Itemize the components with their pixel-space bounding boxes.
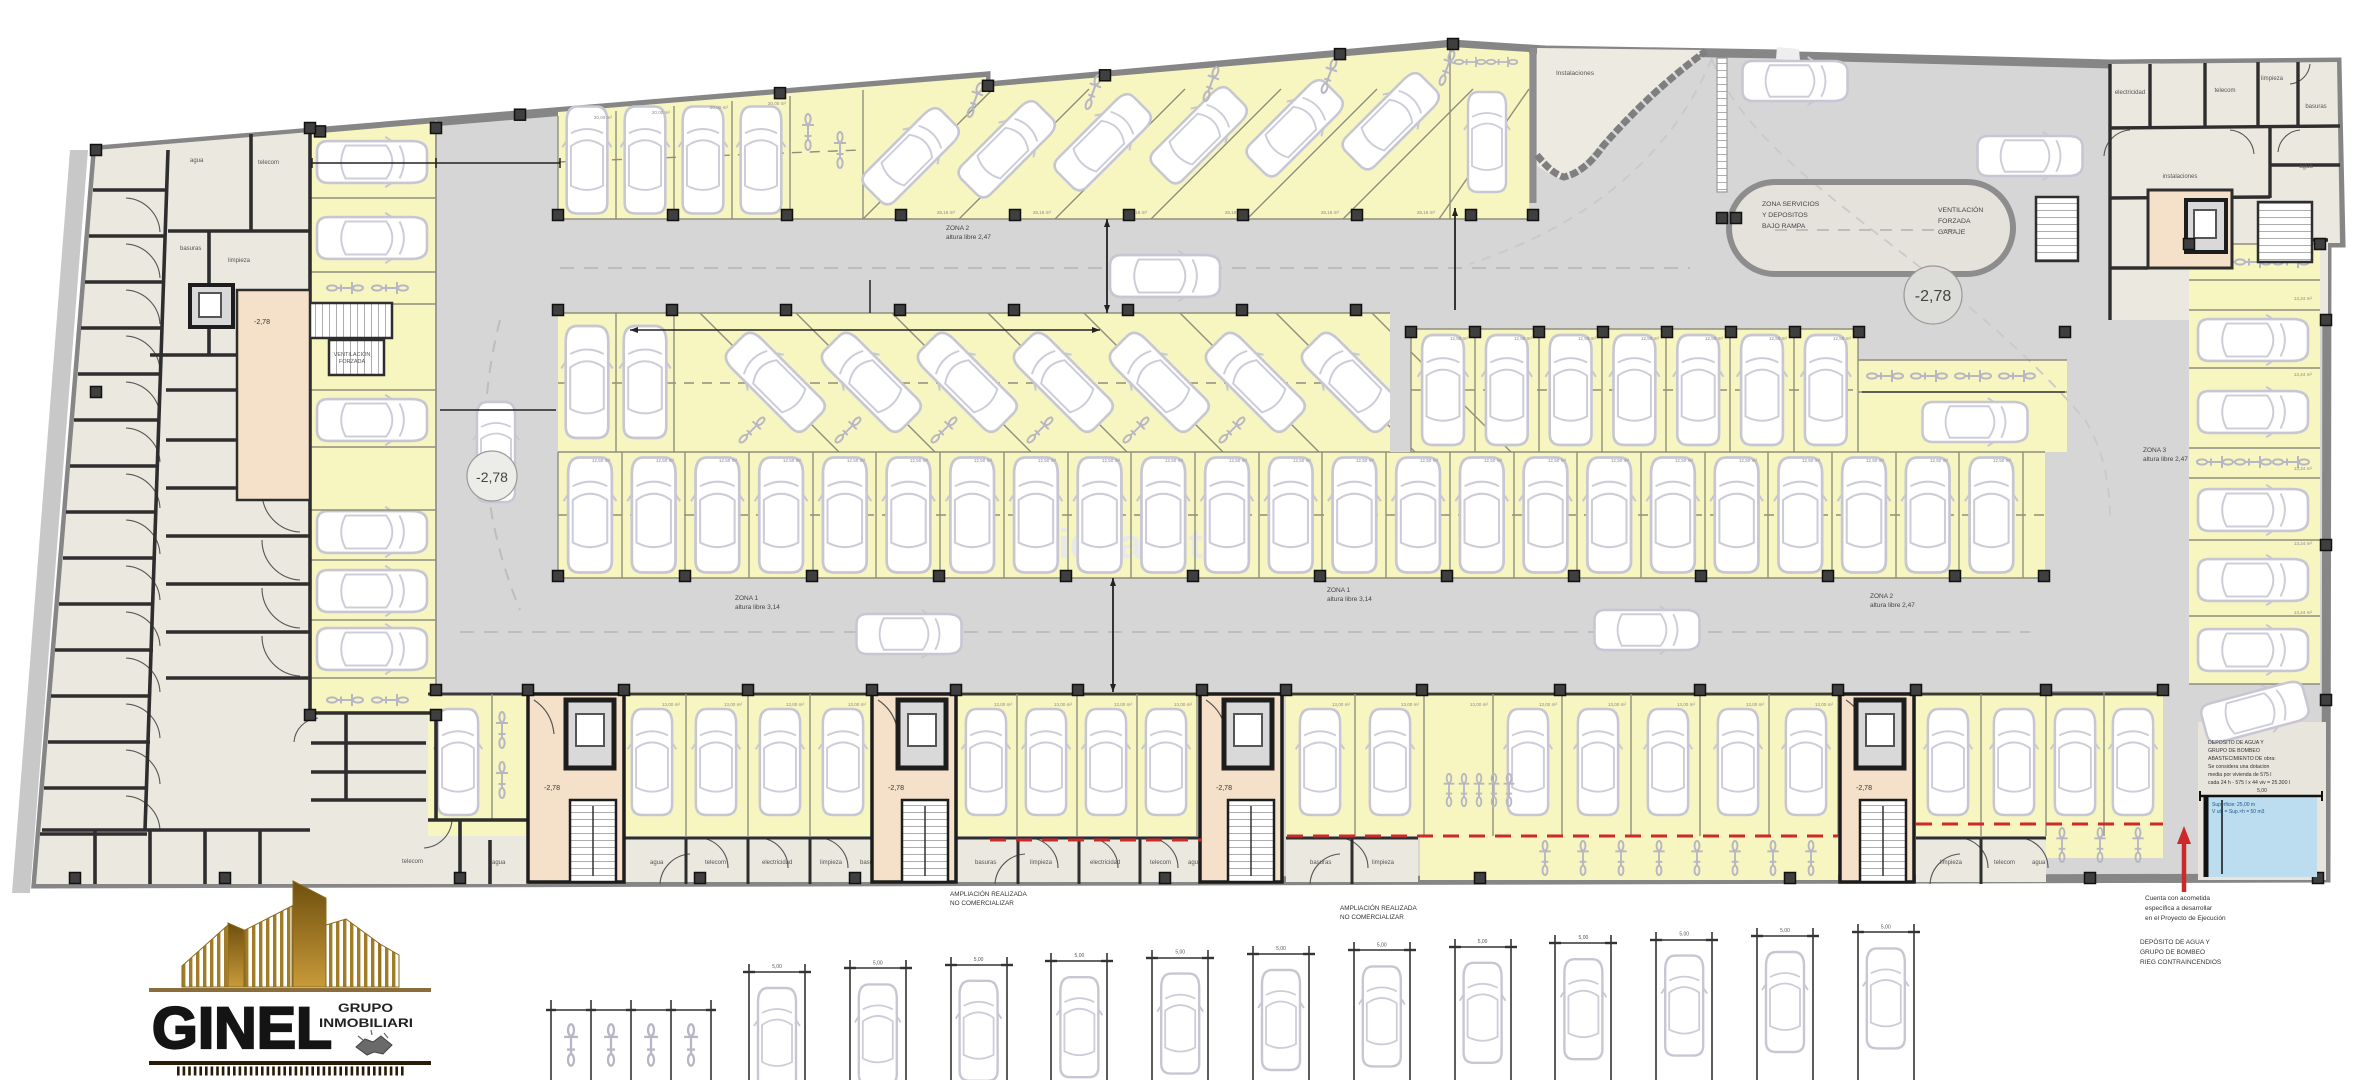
svg-text:5,00: 5,00 [1377,942,1387,948]
svg-text:DEPÓSITO DE AGUA Y: DEPÓSITO DE AGUA Y [2140,937,2211,946]
svg-text:12,50 m²: 12,50 m² [1675,458,1694,463]
svg-text:13,24 m²: 13,24 m² [2294,372,2313,377]
svg-text:GRUPO DE BOMBEO: GRUPO DE BOMBEO [2208,748,2260,754]
svg-text:12,50 m²: 12,50 m² [1833,336,1852,341]
svg-text:ZONA 1: ZONA 1 [1327,587,1351,594]
svg-text:AMPLIACIÓN REALIZADA: AMPLIACIÓN REALIZADA [1340,903,1417,912]
svg-text:Instalaciones: Instalaciones [1556,70,1595,77]
svg-text:electricidad: electricidad [762,860,792,866]
svg-text:12,50 m²: 12,50 m² [1866,458,1885,463]
svg-text:12,50 m²: 12,50 m² [783,458,802,463]
svg-text:agua: agua [190,158,204,164]
svg-text:limpieza: limpieza [2261,76,2284,82]
svg-text:específica a desarrollar: específica a desarrollar [2145,905,2213,912]
svg-text:28,16 m²: 28,16 m² [1321,210,1340,215]
svg-text:DEPOSITO DE AGUA Y: DEPOSITO DE AGUA Y [2208,740,2264,746]
svg-text:limpieza: limpieza [820,860,843,866]
svg-text:telecom: telecom [2214,88,2235,94]
svg-text:13,00 m²: 13,00 m² [724,702,743,707]
svg-text:12,50 m²: 12,50 m² [1641,336,1660,341]
svg-text:FORZADA: FORZADA [1938,218,1971,225]
svg-text:12,50 m²: 12,50 m² [1930,458,1949,463]
svg-text:13,00 m²: 13,00 m² [662,702,681,707]
svg-text:28,16 m²: 28,16 m² [937,210,956,215]
svg-text:ZONA 2: ZONA 2 [1870,593,1894,600]
svg-text:telecom: telecom [402,859,423,865]
svg-text:12,50 m²: 12,50 m² [1293,458,1312,463]
svg-text:5,00: 5,00 [1881,924,1891,930]
svg-text:12,50 m²: 12,50 m² [1802,458,1821,463]
svg-text:NO COMERCIALIZAR: NO COMERCIALIZAR [1340,914,1404,921]
svg-text:5,00: 5,00 [1780,928,1790,934]
svg-text:media por vivienda de 575 l: media por vivienda de 575 l [2208,772,2271,778]
svg-text:VENTILACIÓN: VENTILACIÓN [1938,205,1983,214]
svg-text:BAJO RAMPA: BAJO RAMPA [1762,223,1806,230]
svg-text:ZONA SERVICIOS: ZONA SERVICIOS [1762,201,1820,208]
svg-text:12,50 m²: 12,50 m² [1548,458,1567,463]
svg-text:12,50 m²: 12,50 m² [1514,336,1533,341]
svg-text:telecom: telecom [1150,860,1171,866]
svg-text:INMOBILIARI: INMOBILIARI [319,1016,413,1030]
svg-text:13,00 m²: 13,00 m² [1815,702,1834,707]
svg-text:5,00: 5,00 [974,957,984,963]
svg-text:20,00 m²: 20,00 m² [652,110,671,115]
svg-text:12,50 m²: 12,50 m² [974,458,993,463]
svg-text:GRUPO DE BOMBEO: GRUPO DE BOMBEO [2140,949,2205,956]
svg-text:GINEL: GINEL [152,996,332,1061]
svg-text:5,00: 5,00 [873,960,883,966]
svg-text:12,50 m²: 12,50 m² [1038,458,1057,463]
svg-text:12,50 m²: 12,50 m² [1229,458,1248,463]
svg-text:agua: agua [2299,164,2313,170]
svg-text:-2,78: -2,78 [1216,785,1232,792]
svg-text:13,00 m²: 13,00 m² [1174,702,1193,707]
svg-text:13,00 m²: 13,00 m² [1054,702,1073,707]
svg-text:13,00 m²: 13,00 m² [1746,702,1765,707]
svg-text:ZONA 1: ZONA 1 [735,595,759,602]
svg-text:12,50 m²: 12,50 m² [1705,336,1724,341]
svg-text:-2,78: -2,78 [1856,785,1872,792]
svg-text:5,00: 5,00 [1276,946,1286,952]
svg-text:13,00 m²: 13,00 m² [1608,702,1627,707]
svg-text:altura libre 2,47: altura libre 2,47 [2143,456,2188,463]
svg-text:GARAJE: GARAJE [1938,229,1966,236]
svg-text:telecom: telecom [258,160,279,166]
svg-text:12,50 m²: 12,50 m² [1450,336,1469,341]
svg-text:instalaciones: instalaciones [2163,174,2198,180]
svg-text:13,24 m²: 13,24 m² [2294,610,2313,615]
svg-text:13,00 m²: 13,00 m² [994,702,1013,707]
svg-text:-2,78: -2,78 [1915,288,1952,305]
svg-text:agua: agua [2032,860,2046,866]
svg-text:agua: agua [492,860,506,866]
svg-text:basuras: basuras [180,246,201,252]
svg-text:5,00: 5,00 [1478,939,1488,945]
svg-text:13,00 m²: 13,00 m² [1332,702,1351,707]
svg-text:basuras: basuras [975,860,996,866]
svg-text:13,24 m²: 13,24 m² [2294,541,2313,546]
svg-text:13,00 m²: 13,00 m² [848,702,867,707]
svg-text:AMPLIACIÓN REALIZADA: AMPLIACIÓN REALIZADA [950,889,1027,898]
svg-text:12,50 m²: 12,50 m² [1769,336,1788,341]
svg-text:V util = Sup.×h = 50 m3: V util = Sup.×h = 50 m3 [2212,809,2265,815]
svg-text:-2,78: -2,78 [476,469,508,485]
svg-text:12,50 m²: 12,50 m² [1420,458,1439,463]
svg-text:12,50 m²: 12,50 m² [1356,458,1375,463]
svg-text:cada 24 h - 575 l x 44 viv = 2: cada 24 h - 575 l x 44 viv = 25.300 l [2208,780,2290,786]
svg-text:ZONA 2: ZONA 2 [946,225,970,232]
svg-text:12,50 m²: 12,50 m² [1739,458,1758,463]
svg-text:12,50 m²: 12,50 m² [656,458,675,463]
svg-text:12,50 m²: 12,50 m² [592,458,611,463]
svg-text:12,50 m²: 12,50 m² [847,458,866,463]
svg-text:altura libre 3,14: altura libre 3,14 [1327,596,1372,603]
svg-text:13,00 m²: 13,00 m² [1401,702,1420,707]
svg-text:28,16 m²: 28,16 m² [1417,210,1436,215]
svg-text:5,00: 5,00 [1579,935,1589,941]
svg-text:-2,78: -2,78 [254,319,270,326]
svg-text:limpieza: limpieza [1372,860,1395,866]
svg-text:altura libre 2,47: altura libre 2,47 [946,234,991,241]
svg-text:12,50 m²: 12,50 m² [1102,458,1121,463]
svg-text:limpieza: limpieza [1030,860,1053,866]
svg-text:agua: agua [650,860,664,866]
svg-text:13,00 m²: 13,00 m² [1470,702,1489,707]
svg-text:12,50 m²: 12,50 m² [1578,336,1597,341]
svg-text:RIEG CONTRAINCENDIOS: RIEG CONTRAINCENDIOS [2140,959,2222,966]
svg-text:electricidad: electricidad [2115,90,2145,96]
svg-text:en el Proyecto de Ejecución: en el Proyecto de Ejecución [2145,915,2226,922]
svg-text:Se considera una dotacion: Se considera una dotacion [2208,764,2270,770]
svg-text:5,00: 5,00 [1679,932,1689,938]
svg-text:telecom: telecom [705,860,726,866]
svg-text:Cuenta con acometida: Cuenta con acometida [2145,895,2210,902]
svg-text:basuras: basuras [1310,860,1331,866]
svg-text:basuras: basuras [2305,104,2326,110]
svg-text:GRUPO: GRUPO [338,1001,393,1015]
svg-text:Superficie: 25,00 m: Superficie: 25,00 m [2212,802,2255,808]
svg-text:electricidad: electricidad [1090,860,1120,866]
svg-text:20,00 m²: 20,00 m² [768,101,787,106]
svg-text:altura libre 3,14: altura libre 3,14 [735,604,780,611]
svg-text:limpieza: limpieza [1940,860,1963,866]
svg-text:5,00: 5,00 [1075,953,1085,959]
svg-text:ZONA 3: ZONA 3 [2143,447,2167,454]
svg-text:12,50 m²: 12,50 m² [910,458,929,463]
svg-text:-2,78: -2,78 [544,785,560,792]
svg-text:12,50 m²: 12,50 m² [1611,458,1630,463]
svg-text:13,00 m²: 13,00 m² [786,702,805,707]
svg-text:5,00: 5,00 [1175,950,1185,956]
svg-text:5,00: 5,00 [772,964,782,970]
svg-text:13,00 m²: 13,00 m² [1677,702,1696,707]
svg-text:-2,78: -2,78 [888,785,904,792]
svg-text:limpieza: limpieza [228,258,251,264]
svg-text:NO COMERCIALIZAR: NO COMERCIALIZAR [950,900,1014,907]
svg-text:FORZADA: FORZADA [339,359,366,365]
svg-text:ABASTECIMIENTO DE obra:: ABASTECIMIENTO DE obra: [2208,756,2276,762]
svg-text:20,00 m²: 20,00 m² [710,105,729,110]
svg-text:13,00 m²: 13,00 m² [1539,702,1558,707]
svg-text:13,00 m²: 13,00 m² [1114,702,1133,707]
svg-text:telecom: telecom [1994,860,2015,866]
svg-text:28,16 m²: 28,16 m² [1033,210,1052,215]
svg-text:Y DEPOSITOS: Y DEPOSITOS [1762,212,1808,219]
svg-text:20,00 m²: 20,00 m² [594,115,613,120]
svg-text:13,24 m²: 13,24 m² [2294,466,2313,471]
svg-text:12,50 m²: 12,50 m² [1993,458,2012,463]
svg-text:12,50 m²: 12,50 m² [719,458,738,463]
svg-text:VENTILACIÓN: VENTILACIÓN [334,351,371,358]
svg-text:13,24 m²: 13,24 m² [2294,296,2313,301]
svg-text:12,50 m²: 12,50 m² [1165,458,1184,463]
svg-text:5,00: 5,00 [2257,788,2267,794]
svg-text:12,50 m²: 12,50 m² [1484,458,1503,463]
svg-text:altura libre 2,47: altura libre 2,47 [1870,602,1915,609]
